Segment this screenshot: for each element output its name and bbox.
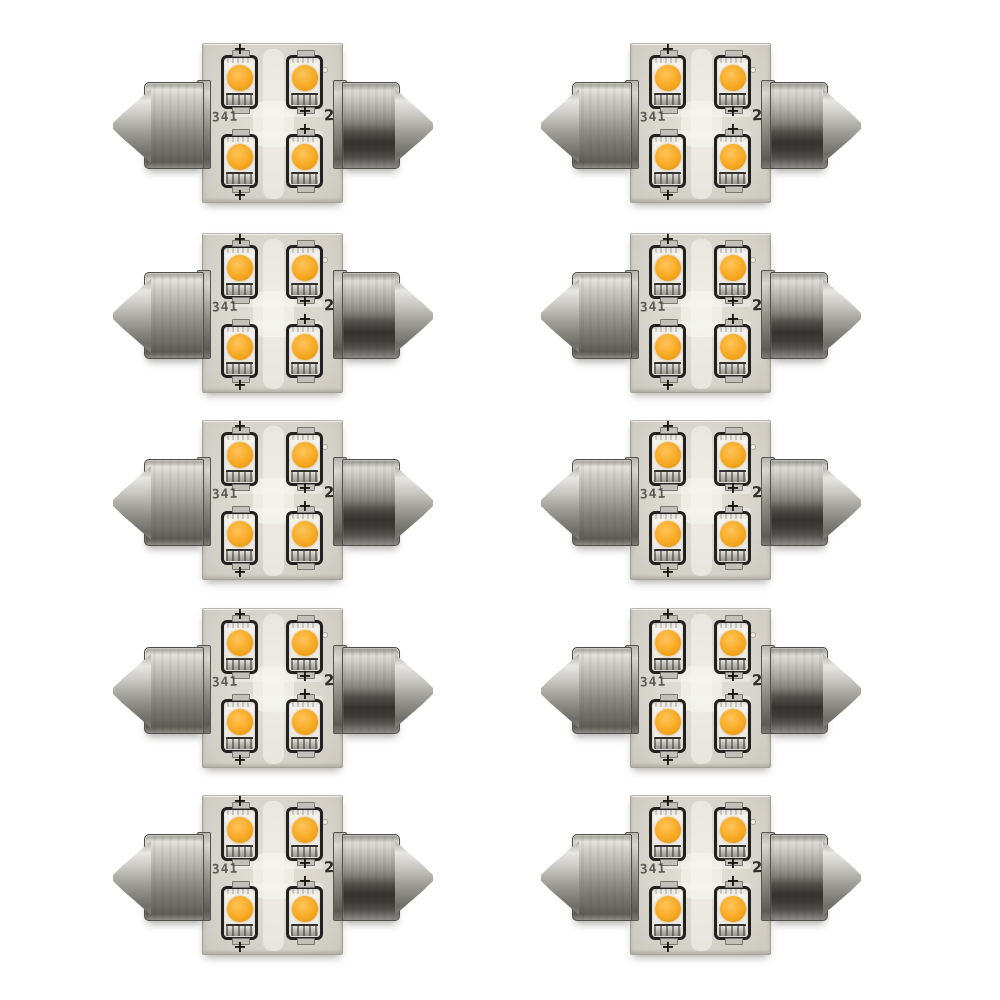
led-phosphor-dot bbox=[227, 630, 253, 656]
right-end-cap bbox=[342, 647, 400, 734]
led-phosphor-dot bbox=[720, 144, 746, 170]
led-board: + + + + 1341 20 bbox=[202, 420, 343, 580]
solder-pad bbox=[725, 615, 743, 622]
led-chip bbox=[221, 620, 258, 674]
led-phosphor-dot bbox=[227, 709, 253, 735]
left-end-cap bbox=[144, 272, 204, 359]
festoon-bulb: + + + + 1341 20 bbox=[541, 420, 861, 580]
polarity-plus-mark: + bbox=[296, 292, 314, 310]
led-chip bbox=[649, 886, 686, 940]
led-electrode bbox=[654, 362, 681, 374]
right-end-cap-tip bbox=[395, 654, 433, 728]
polarity-plus-mark: + bbox=[659, 938, 677, 956]
led-chip bbox=[714, 134, 751, 188]
left-end-cap-tip bbox=[541, 466, 579, 540]
led-top-marking bbox=[227, 435, 252, 440]
led-top-marking bbox=[655, 702, 680, 707]
led-top-marking bbox=[655, 810, 680, 815]
led-chip bbox=[221, 324, 258, 378]
led-chip bbox=[286, 134, 323, 188]
right-end-cap bbox=[770, 272, 828, 359]
led-phosphor-dot bbox=[655, 65, 681, 91]
led-chip bbox=[714, 886, 751, 940]
led-electrode bbox=[226, 93, 253, 105]
solder-pad bbox=[725, 376, 743, 383]
led-electrode bbox=[654, 549, 681, 561]
solder-pad bbox=[297, 427, 315, 434]
polarity-plus-mark: + bbox=[659, 563, 677, 581]
left-end-cap bbox=[144, 647, 204, 734]
product-photo: + + + + 1341 20 bbox=[0, 0, 1000, 1000]
solder-pad bbox=[232, 881, 250, 888]
right-end-cap bbox=[770, 459, 828, 546]
solder-pad bbox=[660, 319, 678, 326]
led-electrode bbox=[654, 172, 681, 184]
polarity-plus-mark: + bbox=[296, 872, 314, 890]
left-end-cap-tip bbox=[113, 841, 151, 915]
led-phosphor-dot bbox=[292, 709, 318, 735]
led-phosphor-dot bbox=[292, 442, 318, 468]
polarity-plus-mark: + bbox=[724, 479, 742, 497]
polarity-plus-mark: + bbox=[231, 417, 249, 435]
led-top-marking bbox=[227, 889, 252, 894]
led-chip bbox=[221, 134, 258, 188]
led-top-marking bbox=[655, 435, 680, 440]
festoon-bulb: + + + + 1341 20 bbox=[541, 233, 861, 393]
right-end-cap-tip bbox=[823, 841, 861, 915]
left-end-cap bbox=[572, 834, 632, 921]
right-end-cap bbox=[770, 82, 828, 169]
polarity-plus-mark: + bbox=[724, 102, 742, 120]
led-board: + + + + 1341 20 bbox=[630, 795, 771, 955]
left-end-cap-tip bbox=[113, 279, 151, 353]
left-end-cap-tip bbox=[113, 466, 151, 540]
led-electrode bbox=[719, 362, 746, 374]
polarity-plus-mark: + bbox=[231, 563, 249, 581]
led-phosphor-dot bbox=[655, 521, 681, 547]
led-board: + + + + 1341 20 bbox=[202, 795, 343, 955]
polarity-plus-mark: + bbox=[659, 751, 677, 769]
right-end-cap bbox=[342, 272, 400, 359]
led-board: + + + + 1341 20 bbox=[630, 233, 771, 393]
led-phosphor-dot bbox=[720, 334, 746, 360]
led-chip bbox=[649, 511, 686, 565]
solder-pad bbox=[232, 694, 250, 701]
led-top-marking bbox=[227, 810, 252, 815]
led-phosphor-dot bbox=[292, 144, 318, 170]
led-phosphor-dot bbox=[227, 144, 253, 170]
solder-pad bbox=[297, 50, 315, 57]
led-board: + + + + 1341 20 bbox=[202, 43, 343, 203]
festoon-bulb: + + + + 1341 20 bbox=[113, 795, 433, 955]
led-phosphor-dot bbox=[227, 896, 253, 922]
polarity-plus-mark: + bbox=[724, 497, 742, 515]
festoon-bulb: + + + + 1341 20 bbox=[113, 43, 433, 203]
led-phosphor-dot bbox=[292, 334, 318, 360]
led-chip bbox=[714, 511, 751, 565]
led-phosphor-dot bbox=[655, 255, 681, 281]
solder-pad bbox=[297, 802, 315, 809]
led-electrode bbox=[719, 737, 746, 749]
polarity-plus-mark: + bbox=[296, 310, 314, 328]
led-electrode bbox=[226, 924, 253, 936]
solder-pad bbox=[297, 186, 315, 193]
left-end-cap bbox=[572, 647, 632, 734]
led-electrode bbox=[226, 549, 253, 561]
led-top-marking bbox=[292, 810, 317, 815]
led-top-marking bbox=[292, 435, 317, 440]
led-chip bbox=[221, 886, 258, 940]
led-phosphor-dot bbox=[292, 817, 318, 843]
polarity-plus-mark: + bbox=[724, 292, 742, 310]
led-top-marking bbox=[720, 58, 745, 63]
led-top-marking bbox=[227, 137, 252, 142]
solder-pad bbox=[660, 129, 678, 136]
led-phosphor-dot bbox=[227, 65, 253, 91]
led-top-marking bbox=[227, 58, 252, 63]
led-electrode bbox=[226, 283, 253, 295]
solder-pad bbox=[725, 938, 743, 945]
led-phosphor-dot bbox=[227, 334, 253, 360]
led-electrode bbox=[291, 737, 318, 749]
polarity-plus-mark: + bbox=[231, 230, 249, 248]
right-end-cap bbox=[770, 834, 828, 921]
led-phosphor-dot bbox=[655, 817, 681, 843]
left-end-cap bbox=[572, 272, 632, 359]
led-top-marking bbox=[292, 248, 317, 253]
solder-pad bbox=[232, 319, 250, 326]
solder-pad bbox=[660, 694, 678, 701]
led-top-marking bbox=[227, 702, 252, 707]
led-electrode bbox=[719, 924, 746, 936]
led-electrode bbox=[654, 737, 681, 749]
led-top-marking bbox=[720, 810, 745, 815]
led-phosphor-dot bbox=[655, 442, 681, 468]
right-end-cap-tip bbox=[395, 466, 433, 540]
left-end-cap bbox=[144, 459, 204, 546]
solder-pad bbox=[725, 186, 743, 193]
solder-pad bbox=[297, 376, 315, 383]
solder-pad bbox=[725, 802, 743, 809]
led-electrode bbox=[654, 658, 681, 670]
left-end-cap-tip bbox=[113, 654, 151, 728]
led-chip bbox=[649, 245, 686, 299]
festoon-bulb: + + + + 1341 20 bbox=[113, 608, 433, 768]
led-chip bbox=[286, 886, 323, 940]
led-phosphor-dot bbox=[655, 896, 681, 922]
left-end-cap bbox=[144, 834, 204, 921]
led-phosphor-dot bbox=[292, 65, 318, 91]
led-electrode bbox=[291, 924, 318, 936]
polarity-plus-mark: + bbox=[231, 938, 249, 956]
polarity-plus-mark: + bbox=[296, 667, 314, 685]
led-phosphor-dot bbox=[655, 630, 681, 656]
solder-pad bbox=[297, 938, 315, 945]
led-top-marking bbox=[720, 435, 745, 440]
polarity-plus-mark: + bbox=[296, 120, 314, 138]
led-phosphor-dot bbox=[720, 709, 746, 735]
polarity-plus-mark: + bbox=[724, 685, 742, 703]
polarity-plus-mark: + bbox=[296, 854, 314, 872]
led-chip bbox=[221, 511, 258, 565]
led-top-marking bbox=[720, 248, 745, 253]
led-board: + + + + 1341 20 bbox=[630, 420, 771, 580]
led-chip bbox=[286, 324, 323, 378]
polarity-plus-mark: + bbox=[659, 230, 677, 248]
led-phosphor-dot bbox=[720, 896, 746, 922]
led-board: + + + + 1341 20 bbox=[202, 608, 343, 768]
polarity-plus-mark: + bbox=[231, 40, 249, 58]
festoon-bulb: + + + + 1341 20 bbox=[113, 420, 433, 580]
solder-pad bbox=[297, 751, 315, 758]
polarity-plus-mark: + bbox=[231, 792, 249, 810]
right-end-cap-tip bbox=[395, 89, 433, 163]
led-top-marking bbox=[227, 248, 252, 253]
led-chip bbox=[649, 55, 686, 109]
polarity-plus-mark: + bbox=[296, 102, 314, 120]
led-top-marking bbox=[655, 248, 680, 253]
led-phosphor-dot bbox=[292, 896, 318, 922]
led-electrode bbox=[654, 924, 681, 936]
solder-pad bbox=[232, 506, 250, 513]
polarity-plus-mark: + bbox=[296, 479, 314, 497]
solder-pad bbox=[725, 50, 743, 57]
led-chip bbox=[286, 699, 323, 753]
right-end-cap bbox=[342, 459, 400, 546]
led-electrode bbox=[291, 362, 318, 374]
polarity-plus-mark: + bbox=[724, 854, 742, 872]
right-end-cap-tip bbox=[823, 89, 861, 163]
led-phosphor-dot bbox=[720, 521, 746, 547]
polarity-plus-mark: + bbox=[659, 792, 677, 810]
led-electrode bbox=[719, 172, 746, 184]
right-end-cap-tip bbox=[395, 279, 433, 353]
solder-pad bbox=[725, 751, 743, 758]
right-end-cap-tip bbox=[395, 841, 433, 915]
led-top-marking bbox=[655, 58, 680, 63]
led-phosphor-dot bbox=[655, 334, 681, 360]
polarity-plus-mark: + bbox=[659, 376, 677, 394]
polarity-plus-mark: + bbox=[296, 685, 314, 703]
led-electrode bbox=[654, 93, 681, 105]
polarity-plus-mark: + bbox=[231, 186, 249, 204]
led-electrode bbox=[226, 658, 253, 670]
solder-pad bbox=[232, 129, 250, 136]
led-electrode bbox=[226, 737, 253, 749]
led-electrode bbox=[654, 845, 681, 857]
led-electrode bbox=[719, 549, 746, 561]
left-end-cap-tip bbox=[113, 89, 151, 163]
led-electrode bbox=[654, 283, 681, 295]
led-top-marking bbox=[292, 623, 317, 628]
polarity-plus-mark: + bbox=[231, 605, 249, 623]
led-chip bbox=[286, 511, 323, 565]
right-end-cap bbox=[770, 647, 828, 734]
led-electrode bbox=[291, 172, 318, 184]
led-chip bbox=[221, 245, 258, 299]
led-top-marking bbox=[227, 514, 252, 519]
left-end-cap bbox=[144, 82, 204, 169]
led-chip bbox=[221, 55, 258, 109]
solder-pad bbox=[297, 615, 315, 622]
led-phosphor-dot bbox=[227, 817, 253, 843]
led-board: + + + + 1341 20 bbox=[202, 233, 343, 393]
led-chip bbox=[221, 699, 258, 753]
solder-pad bbox=[660, 881, 678, 888]
led-chip bbox=[649, 620, 686, 674]
polarity-plus-mark: + bbox=[659, 186, 677, 204]
solder-pad bbox=[725, 563, 743, 570]
left-end-cap-tip bbox=[541, 654, 579, 728]
led-phosphor-dot bbox=[720, 630, 746, 656]
led-phosphor-dot bbox=[720, 442, 746, 468]
polarity-plus-mark: + bbox=[659, 40, 677, 58]
led-phosphor-dot bbox=[720, 817, 746, 843]
polarity-plus-mark: + bbox=[296, 497, 314, 515]
led-electrode bbox=[226, 845, 253, 857]
led-phosphor-dot bbox=[227, 521, 253, 547]
polarity-plus-mark: + bbox=[231, 751, 249, 769]
led-top-marking bbox=[655, 623, 680, 628]
led-phosphor-dot bbox=[720, 65, 746, 91]
led-electrode bbox=[226, 470, 253, 482]
right-end-cap-tip bbox=[823, 466, 861, 540]
led-board: + + + + 1341 20 bbox=[630, 608, 771, 768]
solder-pad bbox=[725, 240, 743, 247]
led-phosphor-dot bbox=[655, 709, 681, 735]
led-top-marking bbox=[292, 58, 317, 63]
led-top-marking bbox=[655, 514, 680, 519]
festoon-bulb: + + + + 1341 20 bbox=[541, 43, 861, 203]
led-electrode bbox=[654, 470, 681, 482]
left-end-cap bbox=[572, 82, 632, 169]
led-chip bbox=[649, 699, 686, 753]
led-top-marking bbox=[720, 623, 745, 628]
right-end-cap bbox=[342, 834, 400, 921]
led-chip bbox=[649, 134, 686, 188]
led-chip bbox=[714, 699, 751, 753]
led-electrode bbox=[226, 172, 253, 184]
solder-pad bbox=[725, 427, 743, 434]
polarity-plus-mark: + bbox=[724, 310, 742, 328]
led-phosphor-dot bbox=[227, 442, 253, 468]
festoon-bulb: + + + + 1341 20 bbox=[541, 795, 861, 955]
led-phosphor-dot bbox=[292, 255, 318, 281]
polarity-plus-mark: + bbox=[724, 872, 742, 890]
led-chip bbox=[714, 324, 751, 378]
right-end-cap-tip bbox=[823, 279, 861, 353]
polarity-plus-mark: + bbox=[659, 417, 677, 435]
right-end-cap-tip bbox=[823, 654, 861, 728]
left-end-cap-tip bbox=[541, 279, 579, 353]
solder-pad bbox=[660, 506, 678, 513]
polarity-plus-mark: + bbox=[724, 667, 742, 685]
led-board: + + + + 1341 20 bbox=[630, 43, 771, 203]
left-end-cap bbox=[572, 459, 632, 546]
led-chip bbox=[649, 432, 686, 486]
led-chip bbox=[649, 324, 686, 378]
led-phosphor-dot bbox=[292, 521, 318, 547]
polarity-plus-mark: + bbox=[231, 376, 249, 394]
led-top-marking bbox=[655, 137, 680, 142]
led-phosphor-dot bbox=[655, 144, 681, 170]
led-electrode bbox=[291, 549, 318, 561]
polarity-plus-mark: + bbox=[724, 120, 742, 138]
led-chip bbox=[221, 807, 258, 861]
solder-pad bbox=[297, 240, 315, 247]
festoon-bulb: + + + + 1341 20 bbox=[113, 233, 433, 393]
polarity-plus-mark: + bbox=[659, 605, 677, 623]
right-end-cap bbox=[342, 82, 400, 169]
led-top-marking bbox=[227, 623, 252, 628]
led-top-marking bbox=[655, 889, 680, 894]
led-chip bbox=[649, 807, 686, 861]
led-electrode bbox=[226, 362, 253, 374]
solder-pad bbox=[297, 563, 315, 570]
led-chip bbox=[221, 432, 258, 486]
led-phosphor-dot bbox=[720, 255, 746, 281]
led-top-marking bbox=[227, 327, 252, 332]
led-top-marking bbox=[655, 327, 680, 332]
led-phosphor-dot bbox=[227, 255, 253, 281]
festoon-bulb: + + + + 1341 20 bbox=[541, 608, 861, 768]
left-end-cap-tip bbox=[541, 841, 579, 915]
led-phosphor-dot bbox=[292, 630, 318, 656]
left-end-cap-tip bbox=[541, 89, 579, 163]
